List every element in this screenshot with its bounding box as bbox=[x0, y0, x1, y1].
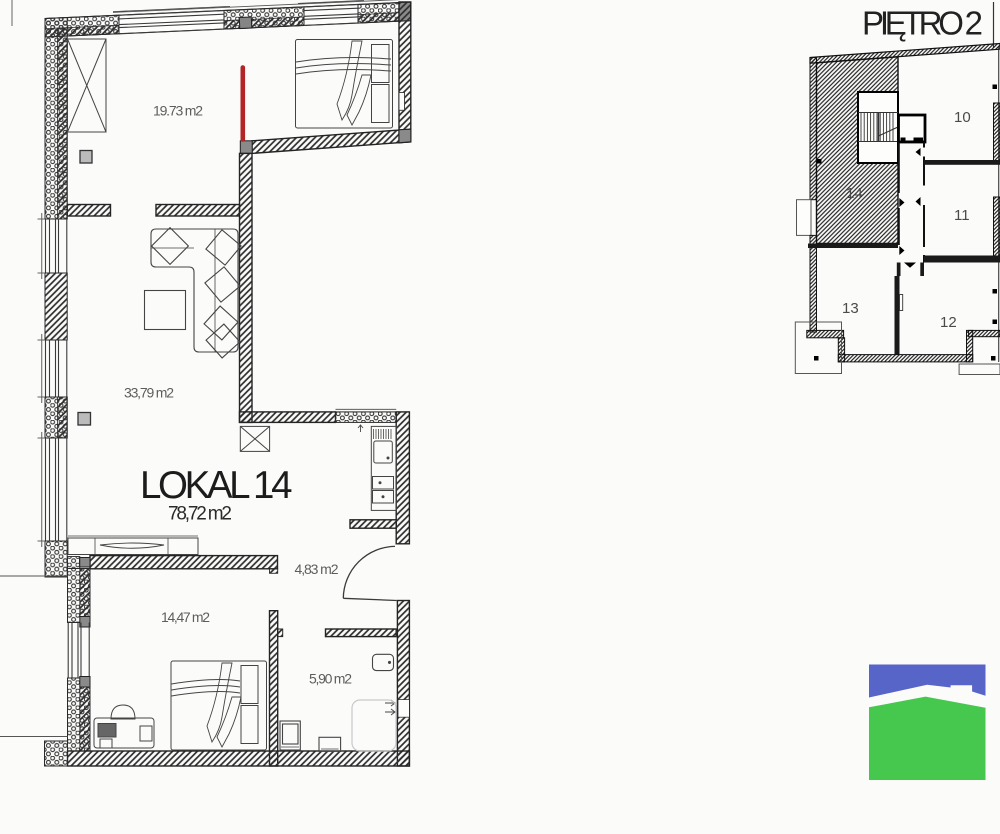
svg-text:33,79 m2: 33,79 m2 bbox=[124, 385, 174, 401]
svg-text:14: 14 bbox=[846, 185, 863, 202]
svg-text:78,72 m2: 78,72 m2 bbox=[168, 504, 232, 525]
svg-text:5,90 m2: 5,90 m2 bbox=[309, 671, 352, 687]
svg-text:19.73 m2: 19.73 m2 bbox=[153, 103, 203, 119]
svg-text:13: 13 bbox=[842, 300, 859, 317]
svg-text:12: 12 bbox=[940, 314, 957, 331]
svg-text:4,83 m2: 4,83 m2 bbox=[295, 561, 339, 577]
svg-text:10: 10 bbox=[954, 109, 971, 126]
svg-text:14,47 m2: 14,47 m2 bbox=[161, 609, 210, 625]
svg-text:11: 11 bbox=[954, 207, 970, 224]
svg-text:LOKAL 14: LOKAL 14 bbox=[140, 464, 293, 507]
svg-text:PIĘTRO 2: PIĘTRO 2 bbox=[862, 5, 984, 42]
